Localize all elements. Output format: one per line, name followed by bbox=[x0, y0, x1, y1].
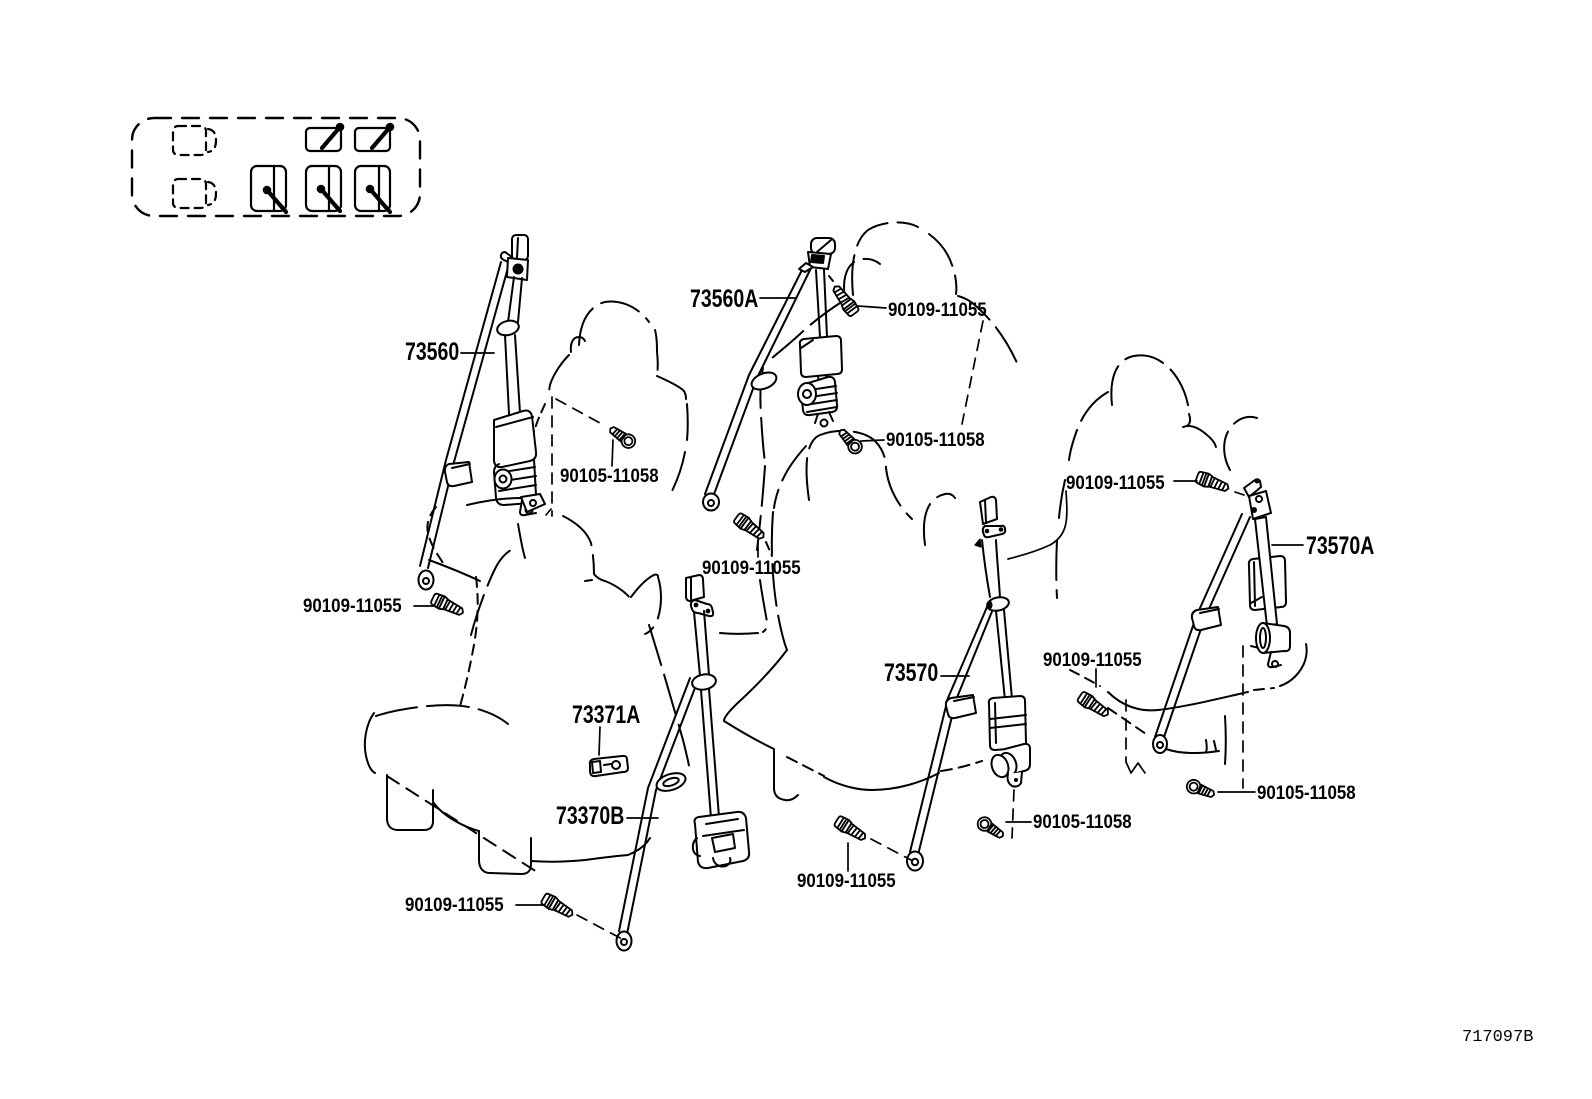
svg-text:717097B: 717097B bbox=[1462, 1028, 1533, 1047]
svg-text:73560A: 73560A bbox=[690, 285, 758, 313]
svg-text:73371A: 73371A bbox=[572, 701, 640, 729]
svg-text:73570: 73570 bbox=[884, 659, 938, 687]
svg-text:90105-11058: 90105-11058 bbox=[560, 465, 659, 486]
svg-text:90105-11058: 90105-11058 bbox=[1033, 811, 1132, 832]
svg-text:90109-11055: 90109-11055 bbox=[1066, 472, 1165, 493]
svg-text:90109-11055: 90109-11055 bbox=[797, 870, 896, 891]
svg-text:90109-11055: 90109-11055 bbox=[405, 894, 504, 915]
svg-text:73560: 73560 bbox=[405, 338, 459, 366]
svg-text:90109-11055: 90109-11055 bbox=[702, 557, 801, 578]
svg-text:90109-11055: 90109-11055 bbox=[1043, 649, 1142, 670]
svg-text:73370B: 73370B bbox=[556, 802, 624, 830]
svg-text:73570A: 73570A bbox=[1306, 532, 1374, 560]
svg-text:90109-11055: 90109-11055 bbox=[888, 299, 987, 320]
svg-text:90109-11055: 90109-11055 bbox=[303, 595, 402, 616]
svg-text:90105-11058: 90105-11058 bbox=[1257, 782, 1356, 803]
svg-text:90105-11058: 90105-11058 bbox=[886, 429, 985, 450]
